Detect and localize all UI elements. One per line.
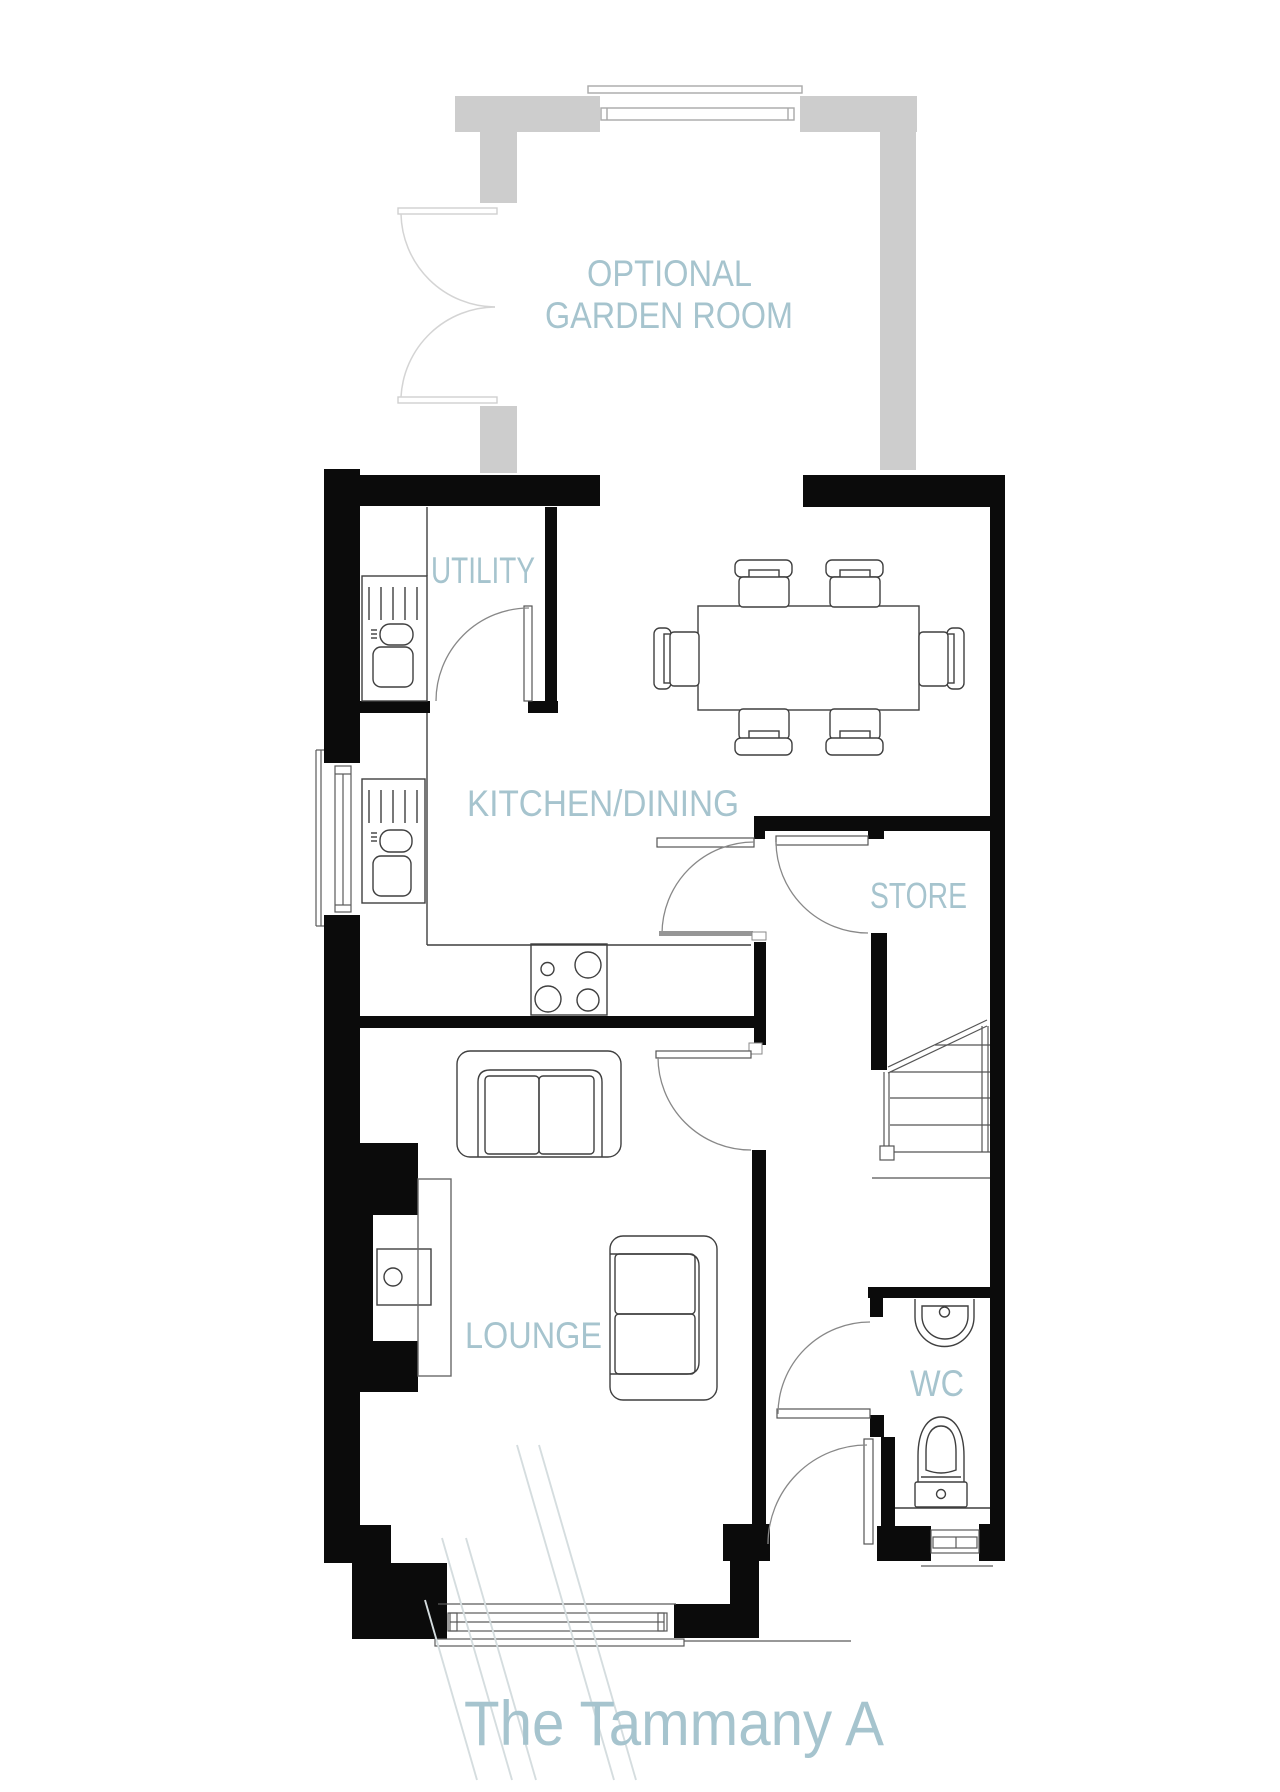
svg-text:OPTIONAL: OPTIONAL (587, 253, 752, 294)
svg-text:STORE: STORE (870, 875, 967, 916)
svg-text:WC: WC (910, 1363, 964, 1404)
svg-text:UTILITY: UTILITY (431, 550, 535, 591)
svg-text:LOUNGE: LOUNGE (465, 1315, 602, 1356)
svg-text:The Tammany A: The Tammany A (464, 1689, 885, 1759)
svg-text:GARDEN ROOM: GARDEN ROOM (545, 295, 793, 336)
svg-text:KITCHEN/DINING: KITCHEN/DINING (467, 783, 739, 824)
